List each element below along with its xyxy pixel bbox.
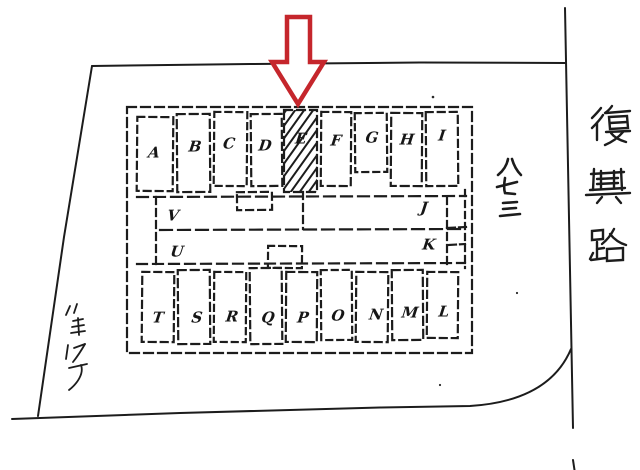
plot-label-n: N — [368, 308, 384, 323]
plot-label-m: M — [401, 306, 419, 321]
plot-outline-q — [250, 268, 283, 344]
plot-label-t: T — [151, 311, 164, 326]
plot-outline-p — [286, 272, 317, 342]
plot-label-u: U — [170, 245, 185, 260]
plot-label-d: D — [258, 139, 273, 154]
plot-label-e: E — [294, 132, 307, 147]
plot-outline-s — [178, 270, 211, 344]
road-name-text — [586, 106, 630, 261]
small-lot-upper — [237, 192, 272, 210]
plot-label-a: A — [147, 146, 160, 161]
road-edge-line — [565, 8, 573, 428]
plot-outline-o — [321, 270, 352, 340]
plot-label-b: B — [188, 140, 203, 155]
small-lot-lower — [268, 246, 302, 268]
site-boundary-top — [92, 63, 566, 67]
plot-label-p: P — [296, 311, 309, 326]
plot-label-o: O — [331, 309, 346, 324]
plot-label-k: K — [422, 238, 437, 253]
plot-label-l: L — [438, 305, 450, 320]
plot-label-s: S — [191, 311, 204, 326]
plot-label-q: Q — [261, 311, 276, 326]
map-drawing — [0, 0, 640, 470]
plot-label-v: V — [166, 209, 179, 224]
plot-label-r: R — [225, 310, 239, 325]
address-number-char-ba — [498, 159, 521, 175]
plot-label-g: G — [365, 131, 380, 146]
plot-outline-i — [426, 112, 459, 186]
plot-label-f: F — [330, 134, 342, 149]
highlight-arrow-icon — [272, 17, 324, 104]
corridor-tick-j — [447, 227, 466, 228]
site-boundary-bottom — [12, 349, 571, 419]
site-boundary-left — [38, 66, 92, 416]
road-name-char-lu — [590, 229, 626, 261]
corridor-line-middle — [160, 229, 460, 230]
address-number-char-san — [500, 202, 520, 216]
sketch-map-page: A B C D E F G H I V U J K T S R Q P O N … — [0, 0, 640, 470]
address-number-char-qi — [497, 178, 517, 194]
plot-outline-h — [391, 113, 423, 186]
corridor-line-top — [137, 196, 466, 197]
address-number-text — [497, 159, 521, 216]
corridor-tick-k — [449, 244, 465, 245]
plot-label-c: C — [222, 137, 236, 152]
handwritten-note-strokes — [66, 304, 87, 390]
road-edge-line-tick — [573, 460, 575, 470]
road-name-char-fu — [592, 106, 630, 145]
plot-outline-t — [142, 272, 175, 342]
plot-label-h: H — [399, 133, 415, 148]
road-name-char-xing — [586, 169, 630, 203]
